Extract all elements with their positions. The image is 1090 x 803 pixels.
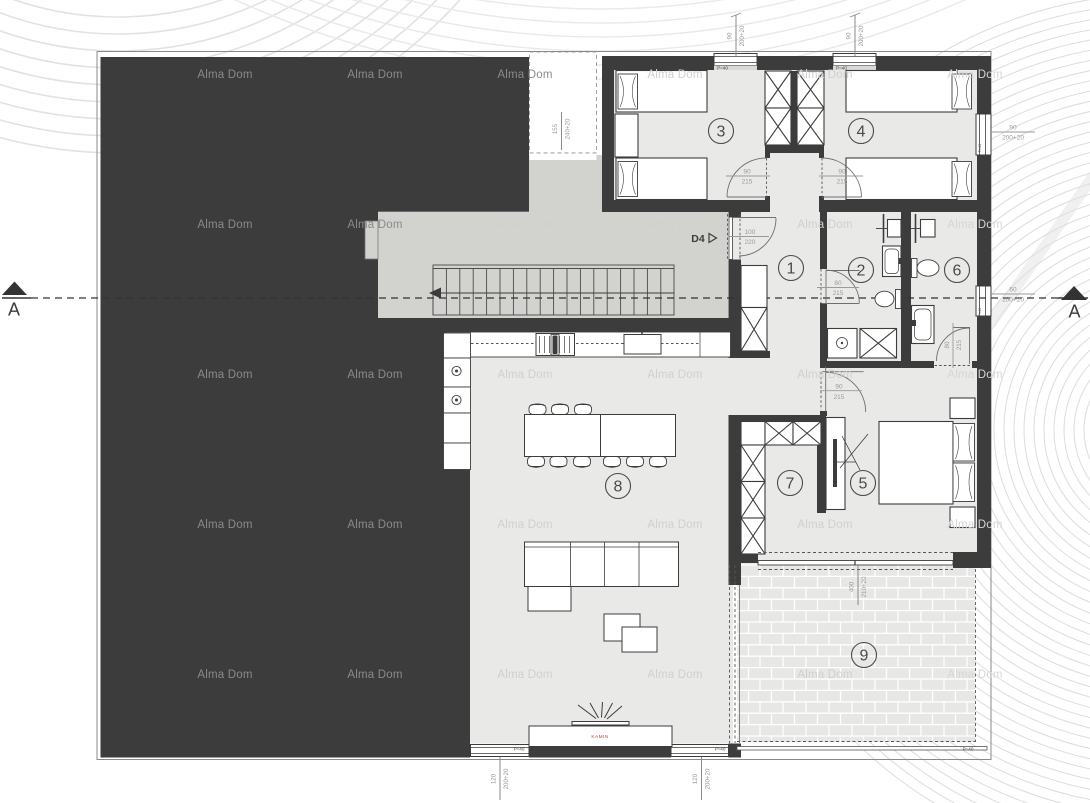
svg-text:215: 215 <box>834 394 845 401</box>
svg-text:220: 220 <box>745 239 756 246</box>
svg-text:8: 8 <box>614 479 623 496</box>
svg-text:Alma Dom: Alma Dom <box>797 519 852 531</box>
svg-text:215: 215 <box>742 179 753 186</box>
svg-text:Alma Dom: Alma Dom <box>497 69 552 81</box>
svg-text:120: 120 <box>692 773 699 784</box>
svg-text:Alma Dom: Alma Dom <box>947 219 1002 231</box>
svg-text:200+20: 200+20 <box>1002 135 1024 142</box>
svg-text:Alma Dom: Alma Dom <box>797 669 852 681</box>
svg-text:Alma Dom: Alma Dom <box>197 669 252 681</box>
svg-text:210+20: 210+20 <box>861 576 868 597</box>
svg-text:P=40: P=40 <box>978 144 982 153</box>
svg-text:7: 7 <box>786 476 795 493</box>
svg-text:120: 120 <box>491 773 498 784</box>
svg-text:Alma Dom: Alma Dom <box>947 369 1002 381</box>
svg-text:Alma Dom: Alma Dom <box>497 519 552 531</box>
svg-text:P=40: P=40 <box>717 65 728 70</box>
svg-text:Alma Dom: Alma Dom <box>197 69 252 81</box>
svg-text:90: 90 <box>1009 125 1017 132</box>
svg-text:KAMIN: KAMIN <box>591 734 608 740</box>
svg-text:Alma Dom: Alma Dom <box>797 219 852 231</box>
svg-text:Alma Dom: Alma Dom <box>647 519 702 531</box>
svg-text:200+20: 200+20 <box>705 768 712 789</box>
svg-text:200+20: 200+20 <box>739 25 746 46</box>
svg-text:Alma Dom: Alma Dom <box>647 369 702 381</box>
svg-text:5: 5 <box>859 476 868 493</box>
svg-text:200+20: 200+20 <box>858 25 865 46</box>
svg-text:Alma Dom: Alma Dom <box>347 519 402 531</box>
svg-text:2: 2 <box>857 263 866 280</box>
svg-text:90: 90 <box>846 32 853 39</box>
svg-text:80: 80 <box>834 280 842 287</box>
svg-text:Alma Dom: Alma Dom <box>947 669 1002 681</box>
svg-text:Alma Dom: Alma Dom <box>347 219 402 231</box>
svg-text:Alma Dom: Alma Dom <box>347 369 402 381</box>
svg-text:3: 3 <box>717 124 726 141</box>
svg-text:Alma Dom: Alma Dom <box>197 519 252 531</box>
svg-text:100: 100 <box>745 229 756 236</box>
svg-text:215: 215 <box>837 179 848 186</box>
svg-text:A: A <box>8 300 20 320</box>
svg-text:Alma Dom: Alma Dom <box>497 669 552 681</box>
svg-text:Alma Dom: Alma Dom <box>797 369 852 381</box>
svg-text:P=40: P=40 <box>715 747 726 752</box>
svg-text:215: 215 <box>956 339 963 350</box>
svg-text:D4: D4 <box>691 233 705 245</box>
svg-text:4: 4 <box>857 124 866 141</box>
svg-text:Alma Dom: Alma Dom <box>197 219 252 231</box>
svg-text:155: 155 <box>552 123 559 134</box>
svg-text:200+20: 200+20 <box>503 768 510 789</box>
svg-text:Alma Dom: Alma Dom <box>197 369 252 381</box>
svg-text:Alma Dom: Alma Dom <box>797 69 852 81</box>
svg-text:80: 80 <box>944 341 951 348</box>
svg-text:Alma Dom: Alma Dom <box>497 369 552 381</box>
svg-text:90: 90 <box>727 32 734 39</box>
svg-text:P=40: P=40 <box>978 308 982 317</box>
svg-text:Alma Dom: Alma Dom <box>647 669 702 681</box>
svg-text:1: 1 <box>787 261 796 278</box>
svg-text:P=40: P=40 <box>963 747 974 752</box>
svg-text:200+20: 200+20 <box>1002 297 1024 304</box>
svg-text:Alma Dom: Alma Dom <box>347 69 402 81</box>
svg-text:Alma Dom: Alma Dom <box>647 69 702 81</box>
svg-text:60: 60 <box>1009 287 1017 294</box>
svg-text:Alma Dom: Alma Dom <box>947 519 1002 531</box>
svg-text:Alma Dom: Alma Dom <box>647 219 702 231</box>
svg-text:A: A <box>1068 302 1080 322</box>
svg-text:6: 6 <box>953 263 962 280</box>
svg-text:240+20: 240+20 <box>565 118 572 139</box>
svg-text:Alma Dom: Alma Dom <box>497 219 552 231</box>
svg-text:90: 90 <box>838 169 846 176</box>
svg-text:90: 90 <box>835 384 843 391</box>
svg-text:Alma Dom: Alma Dom <box>347 669 402 681</box>
svg-text:90: 90 <box>743 169 751 176</box>
svg-text:P=40: P=40 <box>514 747 525 752</box>
svg-text:400: 400 <box>849 581 856 592</box>
svg-text:9: 9 <box>860 648 869 665</box>
svg-text:Alma Dom: Alma Dom <box>947 69 1002 81</box>
svg-text:215: 215 <box>833 290 844 297</box>
